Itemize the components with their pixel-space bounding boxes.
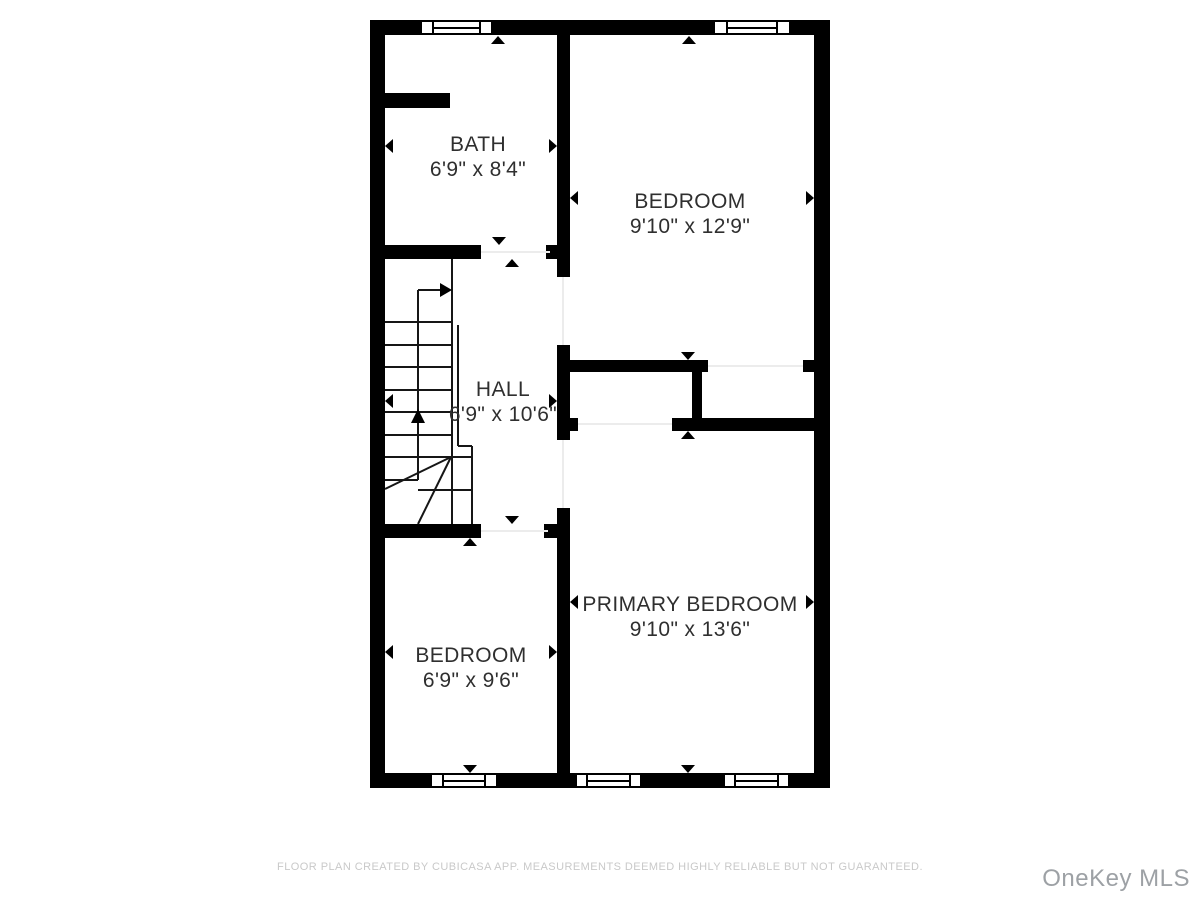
wall-closet-top [570, 360, 708, 372]
wall-closet-top-stub [803, 360, 814, 372]
room-name: PRIMARY BEDROOM [582, 592, 797, 617]
measure-arrow-down-icon [492, 237, 506, 245]
measure-arrow-up-icon [681, 431, 695, 439]
room-name: BEDROOM [415, 643, 526, 668]
measure-arrow-up-icon [463, 538, 477, 546]
window-primary-left [575, 773, 642, 788]
room-name: BATH [430, 132, 526, 157]
measure-arrow-down-icon [681, 352, 695, 360]
window-frame-line [728, 27, 777, 29]
room-dimensions: 6'9" x 9'6" [415, 668, 526, 693]
measure-arrow-right-icon [806, 191, 814, 205]
window-bath-top [420, 20, 493, 35]
room-name: BEDROOM [630, 189, 750, 214]
window-frame-line [588, 780, 630, 782]
measure-arrow-up-icon [505, 259, 519, 267]
wall-exterior-right [814, 20, 830, 788]
window-primary-right [723, 773, 790, 788]
wall-divider-upper [557, 35, 570, 277]
wall-closet-bottom-stub [570, 418, 578, 431]
room-label-hall: HALL 6'9" x 10'6" [449, 377, 557, 427]
measure-arrow-left-icon [385, 645, 393, 659]
window-bedroom-top [713, 20, 791, 35]
measure-arrow-right-icon [549, 139, 557, 153]
wall-bath-bottom-right [546, 245, 570, 259]
measure-arrow-left-icon [570, 191, 578, 205]
wall-divider-lower [557, 508, 570, 773]
measure-arrow-down-icon [463, 765, 477, 773]
measure-arrow-up-icon [491, 36, 505, 44]
measure-arrow-up-icon [682, 36, 696, 44]
measure-arrow-right-icon [549, 645, 557, 659]
arrowhead-right-icon [440, 283, 452, 297]
watermark-onekey-mls: OneKey MLS [1042, 865, 1190, 893]
room-dimensions: 6'9" x 8'4" [430, 157, 526, 182]
floor-plan-page: BATH 6'9" x 8'4" BEDROOM 9'10" x 12'9" H… [0, 0, 1200, 900]
arrowhead-up-icon [411, 409, 425, 423]
room-label-primary-bedroom: PRIMARY BEDROOM 9'10" x 13'6" [582, 592, 797, 642]
measure-arrow-left-icon [385, 139, 393, 153]
measure-arrow-left-icon [385, 394, 393, 408]
stair-direction-arrow [411, 283, 452, 480]
room-label-bedroom-bottom: BEDROOM 6'9" x 9'6" [415, 643, 526, 693]
measure-arrow-down-icon [505, 516, 519, 524]
room-label-bedroom-top: BEDROOM 9'10" x 12'9" [630, 189, 750, 239]
wall-hall-bottom-left [370, 524, 481, 538]
wall-divider-middle [557, 345, 570, 440]
measure-arrow-down-icon [681, 765, 695, 773]
wall-closet-bottom [672, 418, 814, 431]
wall-hall-bottom-right [544, 524, 570, 538]
room-dimensions: 9'10" x 12'9" [630, 214, 750, 239]
room-label-bath: BATH 6'9" x 8'4" [430, 132, 526, 182]
wall-bath-bottom-left [370, 245, 481, 259]
wall-bath-stub [385, 93, 450, 108]
disclaimer-text: FLOOR PLAN CREATED BY CUBICASA APP. MEAS… [0, 861, 1200, 873]
stairs-and-arrows-overlay [0, 0, 1200, 900]
room-dimensions: 6'9" x 10'6" [449, 402, 557, 427]
measure-arrow-left-icon [570, 595, 578, 609]
wall-exterior-left [370, 20, 385, 788]
window-bedroom-bottom [430, 773, 498, 788]
room-name: HALL [449, 377, 557, 402]
room-dimensions: 9'10" x 13'6" [582, 617, 797, 642]
window-frame-line [443, 780, 485, 782]
measure-arrow-right-icon [806, 595, 814, 609]
window-frame-line [434, 27, 480, 29]
window-frame-line [736, 780, 778, 782]
